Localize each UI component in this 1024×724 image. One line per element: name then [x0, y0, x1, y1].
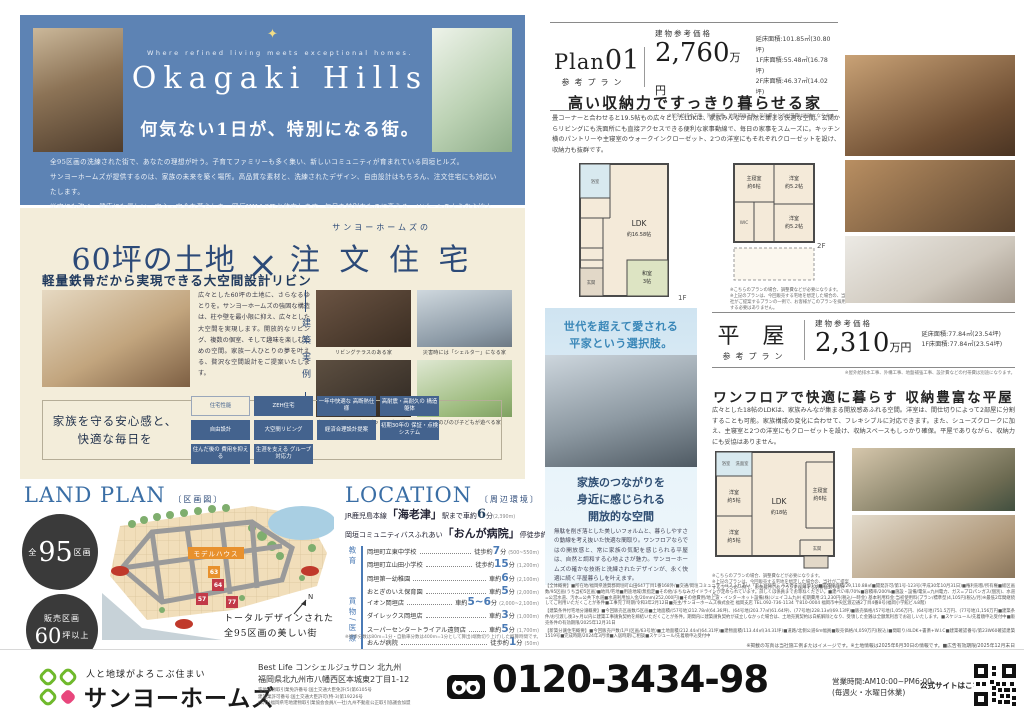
svg-text:約6帖: 約6帖 [747, 183, 760, 190]
dotted-leader [426, 617, 486, 618]
hiraya-panel-subtitle: 家族のつながりを 身近に感じられる 開放的な空間 [545, 474, 697, 525]
plan01-number: 01 [605, 45, 639, 76]
plan01-title: 高い収納力ですっきり暮らせる家 [545, 92, 845, 113]
svg-text:洋室: 洋室 [789, 175, 799, 182]
svg-text:約6帖: 約6帖 [813, 495, 826, 502]
svg-text:約5.2帖: 約5.2帖 [785, 183, 803, 190]
svg-text:N: N [308, 593, 313, 601]
location-bracket: 〔周辺環境〕 [480, 495, 540, 504]
dotted-leader [426, 566, 473, 567]
svg-text:洋室: 洋室 [729, 489, 739, 496]
hiraya-name: 平 屋 [716, 318, 794, 350]
dotted-leader [469, 631, 486, 632]
location-title: LOCATION 〔周辺環境〕 [345, 483, 540, 507]
sparkle-icon: ✦ [20, 27, 525, 42]
feature-badge: 一年中快適な 高断熱仕様 [317, 396, 376, 416]
hiraya-panel-body: 無駄を削ぎ落とした美しいフォルムと、暮らしやすさの動線を考え抜いた快適な間取り。… [554, 528, 688, 584]
svg-text:2F: 2F [817, 242, 825, 250]
phone-number: 0120-3434-98 [492, 658, 768, 701]
hero-body-line: サンヨーホームズが提供するのは、家族の未来を築く場所。高品質な素材と、洗練された… [50, 170, 498, 200]
hiraya-title: ワンフロアで快適に暮らす 収納豊富な平屋 [712, 386, 1015, 406]
hiraya-header: 平 屋 参考プラン 建物参考価格 2,310万円 延床面積:77.84㎡(23.… [712, 312, 1015, 376]
svg-text:玄関: 玄関 [813, 545, 822, 552]
qr-code [974, 664, 1016, 706]
freedial-icon [446, 672, 486, 702]
compass: N [294, 593, 313, 614]
hiraya-type: 参考プラン [716, 351, 794, 362]
svg-text:主寝室: 主寝室 [812, 487, 827, 494]
plan01-note: ※こちらのプランの場合、調整費などが必要になります。 ※上記のプランは、今回販売… [730, 288, 848, 312]
license-line: (公社)福岡県宅地建物取引業協会会員/(一社)九州不動産公正取引協議会加盟 [258, 701, 411, 708]
hiraya-panel: 世代を超えて愛される 平家という選択肢。 家族のつながりを 身近に感じられる 開… [545, 308, 697, 585]
hero-body-line: 全95区画の洗練された街で、あなたの理想が叶う。子育てファミリーも多く集い、新し… [50, 155, 498, 170]
living-room-photo [42, 290, 190, 387]
dotted-leader [420, 553, 472, 554]
hiraya-body: 広々とした18帖のLDKは、家族みんなが集まる開放感あふれる空間。洋室は、間仕切… [712, 406, 1015, 448]
location-headline-train: JR鹿児島本線「海老津」駅まで車約6分(2,390m) [345, 506, 515, 522]
hiraya-areas: 延床面積:77.84㎡(23.54坪)1F床面積:77.84㎡(23.54坪) [921, 330, 1002, 351]
feature-badge: 経済合理設計提案 [317, 420, 376, 440]
features-band: 家族を守る安心感と、 快適な毎日を 住宅性能ZEH住宅一年中快適な 高断熱仕様高… [42, 400, 502, 460]
feature-badges: 住宅性能ZEH住宅一年中快適な 高断熱仕様高耐震・高耐久の 構造躯体自由設計大空… [191, 396, 493, 464]
feature-badge: 住宅性能 [191, 396, 250, 416]
svg-text:玄関: 玄関 [587, 279, 596, 286]
svg-text:和室: 和室 [642, 270, 652, 277]
hiraya-price: 2,310万円 [815, 329, 911, 362]
title-kicker: サンヨーホームズの [332, 222, 431, 233]
dotted-leader [401, 644, 487, 645]
feature-badge: ZEH住宅 [254, 396, 313, 416]
location-group-education: 教育 岡垣町立東中学校 徒歩約 7 分 (500~550m) 岡垣町立山田小学校… [347, 546, 539, 600]
svg-text:浴室: 浴室 [591, 178, 600, 185]
clover-logo-icon [36, 665, 80, 709]
svg-text:主寝室: 主寝室 [746, 175, 761, 182]
svg-text:洗面室: 洗面室 [736, 460, 750, 467]
dotted-leader [413, 580, 486, 581]
legal-land-terms: 【建築条件付宅地分譲概要】■今回販売区画数/5区画■土地面積/(57号地)212… [545, 609, 1015, 626]
svg-text:WIC: WIC [740, 220, 749, 226]
svg-text:約5.2帖: 約5.2帖 [785, 223, 803, 230]
example-photo [417, 290, 512, 347]
total-lots-number: 95 [38, 537, 72, 568]
footer-address: 福岡県北九州市八幡西区本城東2丁目1-12 [258, 674, 409, 686]
dotted-leader [407, 604, 452, 605]
total-lots-circle: 全 95 区画 [22, 514, 98, 590]
hero-tagline: Where refined living meets exceptional h… [120, 49, 440, 57]
hero-subtitle: 何気ない1日が、特別になる街。 [120, 115, 440, 140]
area-line: 延床面積:101.85㎡(30.80坪) [756, 35, 834, 56]
plan01-photo-washroom [845, 236, 1015, 303]
svg-text:洋室: 洋室 [729, 529, 739, 536]
model-house-label: モデルハウス [188, 547, 244, 559]
feature-badge: 生涯を支える グループ対応力 [254, 444, 313, 464]
legal-overview: 【全体概要】■所在地/福岡県遠賀郡岡垣町山田647丁目1番168外/■交通/岡垣… [545, 584, 1015, 607]
location-row: 岡垣第一幼稚園 車約 6 分 (2,100m) [367, 573, 539, 586]
feature-badge: 自由設計 [191, 420, 250, 440]
sale-lot-size-number: 60 [35, 624, 62, 648]
plan01-name: Plan [554, 50, 605, 74]
location-row: 岡垣町立山田小学校 徒歩約 15 分 (1,200m) [367, 559, 539, 572]
lot-marker: 77 [226, 596, 238, 608]
custom-home-section: 60坪の土地 × サンヨーホームズの 注 文 住 宅 軽量鉄骨だから実現できる大… [20, 208, 525, 479]
business-hours: 営業時間:AM10:00~PM6:00 (毎週火・水曜日休業) [832, 676, 932, 698]
dotted-leader [426, 593, 486, 594]
area-line: 1F床面積:77.84㎡(23.54坪) [921, 340, 1002, 351]
svg-text:洋室: 洋室 [789, 215, 799, 222]
location-row: ダイレックス岡垣店 車約 3 分 (1,000m) [367, 610, 539, 623]
hiraya-floorplan: 浴室 洗面室 洋室 約5帖 洋室 約5帖 LDK 約18帖 主寝室 約6帖 玄関 [712, 448, 847, 573]
divider [644, 47, 645, 87]
area-line: 延床面積:77.84㎡(23.54坪) [921, 330, 1002, 341]
svg-text:LDK: LDK [772, 497, 788, 506]
feature-badge: 初期30年の 保証・点検システム [380, 420, 439, 440]
example-item: 災害時には「シェルター」になる家 [417, 290, 512, 356]
hero-section: ✦ Where refined living meets exceptional… [20, 15, 525, 205]
custom-body: 広々とした60坪の土地に、さらなるゆとりを。サンヨーホームズの強固な構造は、柱や… [198, 290, 310, 380]
legal-block: 【全体概要】■所在地/福岡県遠賀郡岡垣町山田647丁目1番168外/■交通/岡垣… [545, 584, 1015, 649]
location-footnote: ※徒歩分数は80m=1分・自動車分数は400m=1分として算出(端数切り上げ)し… [345, 634, 541, 640]
flyer-sheet: ✦ Where refined living meets exceptional… [0, 0, 1024, 724]
svg-text:約18帖: 約18帖 [771, 509, 787, 516]
location-row: イオン岡垣店 車約 5~6 分 (2,000~2,100m) [367, 597, 539, 610]
hiraya-price-note: ※屋外給排水工事、外構工事、地盤補強工事、設計費などの付帯費は別途になります。 [712, 370, 1015, 376]
example-photo [316, 290, 411, 347]
plan01-photo-terrace [845, 160, 1015, 232]
svg-text:約16.58帖: 約16.58帖 [627, 231, 651, 238]
brand-name: サンヨーホームズ [84, 679, 275, 713]
feature-badge: 高耐震・高耐久の 構造躯体 [380, 396, 439, 416]
feature-badge: 大空間リビング [254, 420, 313, 440]
example-caption: 災害時には「シェルター」になる家 [417, 349, 512, 356]
svg-text:LDK: LDK [632, 219, 648, 228]
legal-new-house: 【新築分譲住宅概要】■今回販売戸数/1戸(区画/63号地)■土地面積/212.4… [545, 629, 1015, 641]
example-caption: リビングテラスのある家 [316, 349, 411, 356]
footer-licenses: 宅地建物取引業免許番号:国土交通大臣免許(5)第6105号建設業許可番号:国土交… [258, 688, 411, 708]
lot-marker: 63 [208, 566, 220, 578]
footer-office: Best Life コンシェルジュサロン 北九州 福岡県北九州市八幡西区本城東2… [258, 662, 409, 686]
location-headline-bus: 岡垣コミュニティバスふれあい「おんが病院」停徒歩約1分(80m) [345, 525, 578, 541]
lot-marker: 64 [212, 579, 224, 591]
map-caption: トータルデザインされた 全95区画の美しい街 [224, 612, 334, 642]
plan01-type: 参考プラン [554, 77, 634, 88]
location-row: 岡垣町立東中学校 徒歩約 7 分 (500~550m) [367, 546, 539, 559]
location-category-label: 教育 [347, 546, 363, 600]
hiraya-photo-living [852, 448, 1015, 511]
lot-marker: 57 [196, 593, 208, 605]
area-line: 1F床面積:55.48㎡(16.78坪) [756, 56, 834, 77]
hiraya-house-photo [545, 355, 697, 467]
plan01-areas: 延床面積:101.85㎡(30.80坪)1F床面積:55.48㎡(16.78坪)… [756, 35, 834, 98]
divider [804, 320, 805, 360]
hiraya-photo-dining [852, 515, 1015, 578]
example-item: リビングテラスのある家 [316, 290, 411, 356]
svg-text:約5帖: 約5帖 [727, 537, 740, 544]
footer: 人と地球がよろこぶ住まい サンヨーホームズ Best Life コンシェルジュサ… [0, 649, 1024, 724]
hero-title: Okagaki Hills [112, 61, 448, 96]
svg-text:3帖: 3帖 [643, 278, 651, 285]
map-pond [268, 506, 334, 540]
plan01-body: 畳コーナーと合わせると19.5帖もの広々としたLDKは、家族みんなが自然と集まる… [552, 114, 840, 156]
svg-text:1F: 1F [678, 294, 686, 302]
features-band-title: 家族を守る安心感と、 快適な毎日を [51, 412, 179, 448]
plan01-floorplan-1f: 浴室 LDK 約16.58帖 和室 3帖 玄関 1F [573, 160, 695, 305]
hiraya-panel-title: 世代を超えて愛される 平家という選択肢。 [545, 318, 697, 352]
svg-text:浴室: 浴室 [722, 460, 731, 467]
plan01-floorplan-2f: 主寝室 約6帖 洋室 約5.2帖 洋室 約5.2帖 WIC 2F [730, 160, 826, 285]
plan01-photo-living [845, 55, 1015, 156]
divider [305, 290, 306, 312]
svg-text:約5帖: 約5帖 [727, 497, 740, 504]
feature-badge: 住んだ後の 費用を抑える [191, 444, 250, 464]
hero-interior-photo [33, 28, 123, 152]
